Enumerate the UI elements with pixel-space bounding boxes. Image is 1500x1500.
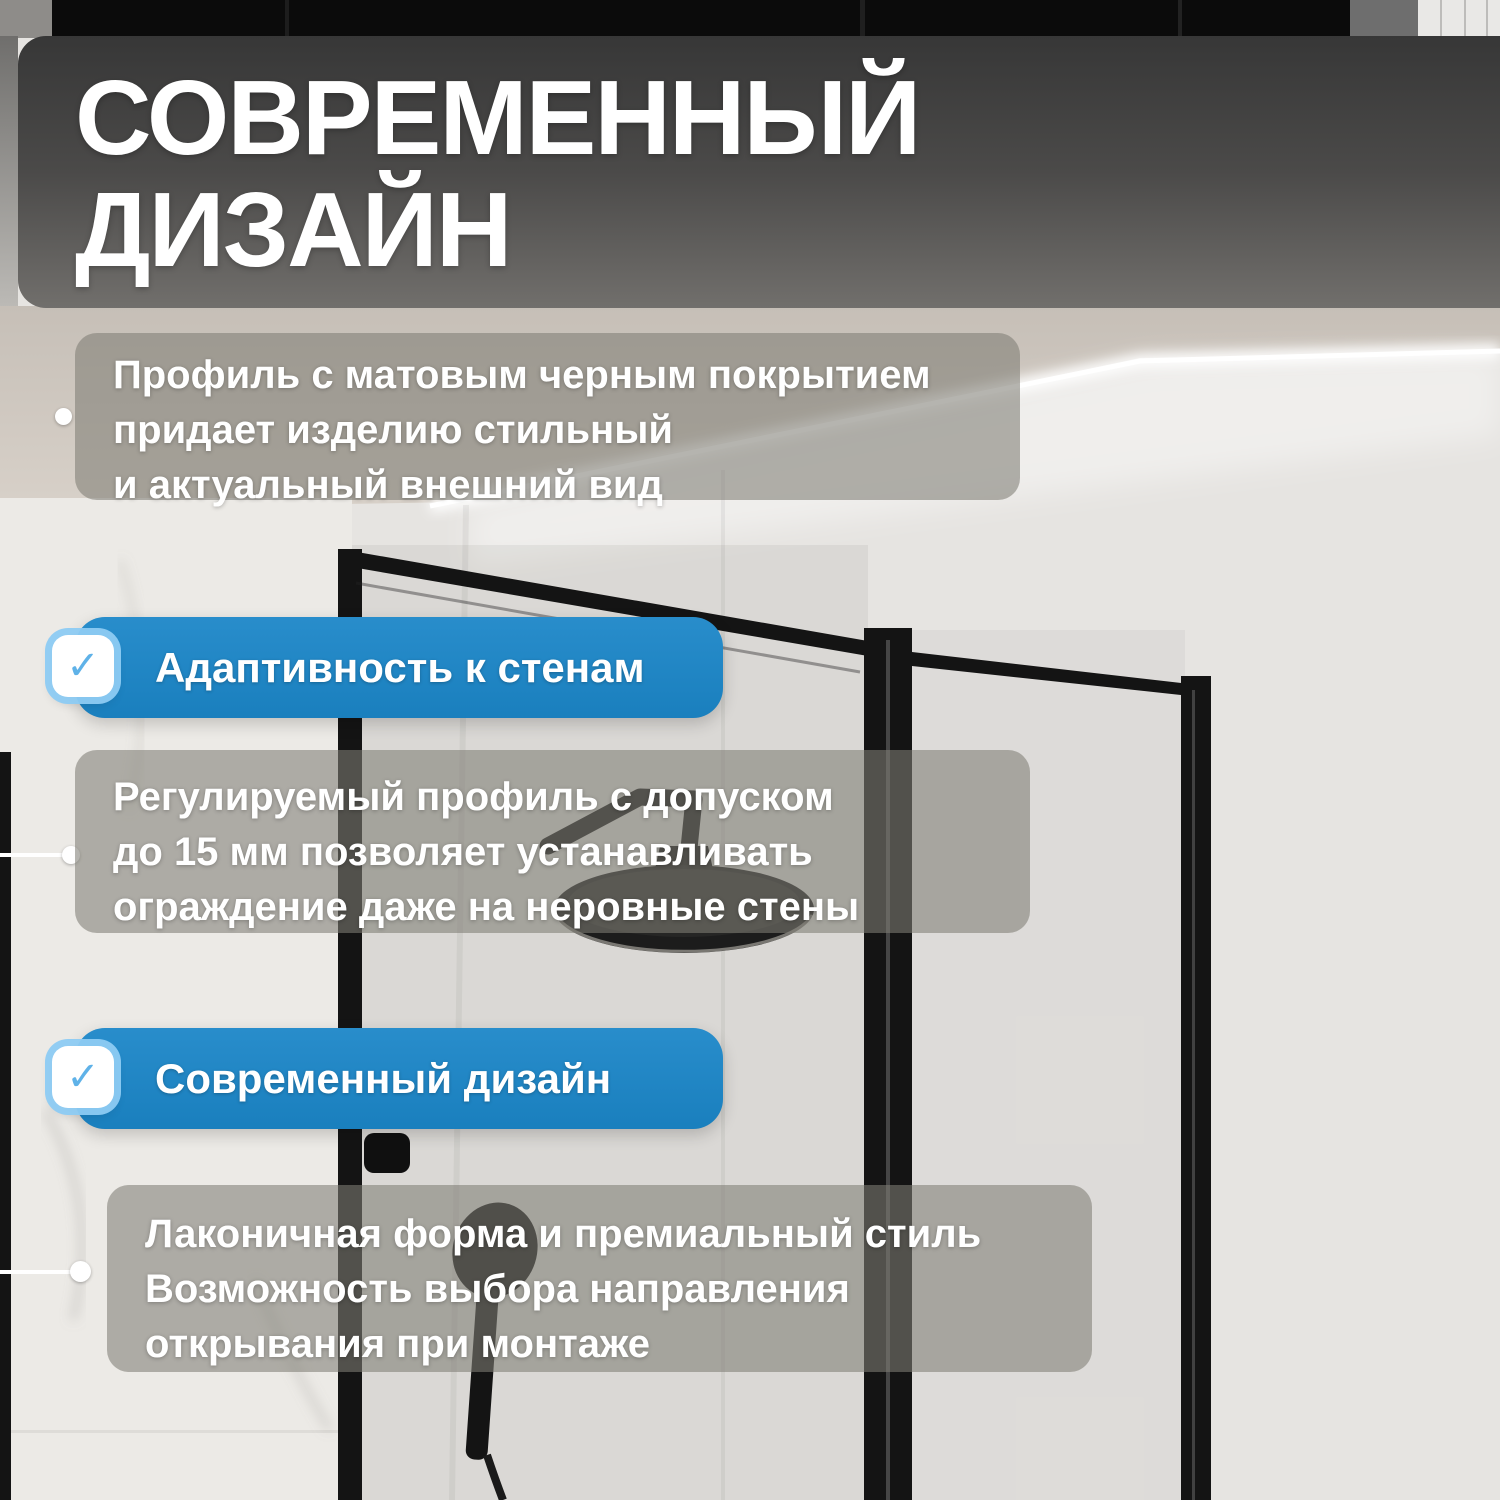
feature-2-line-3: открывания при монтаже bbox=[145, 1317, 1092, 1372]
feature-1-line-1: Регулируемый профиль с допуском bbox=[113, 770, 1030, 825]
feature-checkbox-2: ✓ bbox=[52, 1046, 114, 1108]
page-title: СОВРЕМЕННЫЙ ДИЗАЙН bbox=[75, 62, 919, 286]
feature-1-line-3: ограждение даже на неровные стены bbox=[113, 880, 1030, 935]
rail-bracket bbox=[364, 1133, 410, 1173]
feature-card-design: Лаконичная форма и премиальный стиль Воз… bbox=[107, 1185, 1092, 1372]
feature-badge-label: Адаптивность к стенам bbox=[155, 644, 645, 692]
post-highlight-2 bbox=[1192, 690, 1195, 1500]
intro-line-2: придает изделию стильный bbox=[113, 403, 1020, 458]
connector-line-2 bbox=[0, 853, 66, 857]
panel-left-photo-sliver bbox=[0, 36, 18, 308]
feature-2-line-2: Возможность выбора направления bbox=[145, 1262, 1092, 1317]
title-panel: СОВРЕМЕННЫЙ ДИЗАЙН bbox=[18, 36, 1500, 308]
intro-line-3: и актуальный внешний вид bbox=[113, 458, 1020, 513]
check-icon: ✓ bbox=[66, 646, 100, 686]
title-line-2: ДИЗАЙН bbox=[75, 174, 919, 286]
intro-line-1: Профиль с матовым черным покрытием bbox=[113, 348, 1020, 403]
check-icon: ✓ bbox=[66, 1057, 100, 1097]
feature-badge-label: Современный дизайн bbox=[155, 1055, 611, 1103]
feature-card-adaptability: Регулируемый профиль с допуском до 15 мм… bbox=[75, 750, 1030, 933]
top-dark-strip bbox=[0, 0, 1500, 38]
feature-checkbox-1: ✓ bbox=[52, 635, 114, 697]
feature-badge-design: Современный дизайн bbox=[75, 1028, 723, 1129]
frame-left-edge bbox=[0, 752, 11, 1500]
title-line-1: СОВРЕМЕННЫЙ bbox=[75, 62, 919, 174]
feature-2-line-1: Лаконичная форма и премиальный стиль bbox=[145, 1207, 1092, 1262]
connector-line-3 bbox=[0, 1270, 72, 1274]
feature-1-line-2: до 15 мм позволяет устанавливать bbox=[113, 825, 1030, 880]
intro-card: Профиль с матовым черным покрытием прида… bbox=[75, 333, 1020, 500]
intro-bullet-dot bbox=[55, 408, 72, 425]
feature-badge-adaptability: Адаптивность к стенам bbox=[75, 617, 723, 718]
connector-dot-3 bbox=[70, 1261, 91, 1282]
frame-post-right bbox=[1181, 676, 1211, 1500]
infographic-canvas: СОВРЕМЕННЫЙ ДИЗАЙН Профиль с матовым чер… bbox=[0, 0, 1500, 1500]
